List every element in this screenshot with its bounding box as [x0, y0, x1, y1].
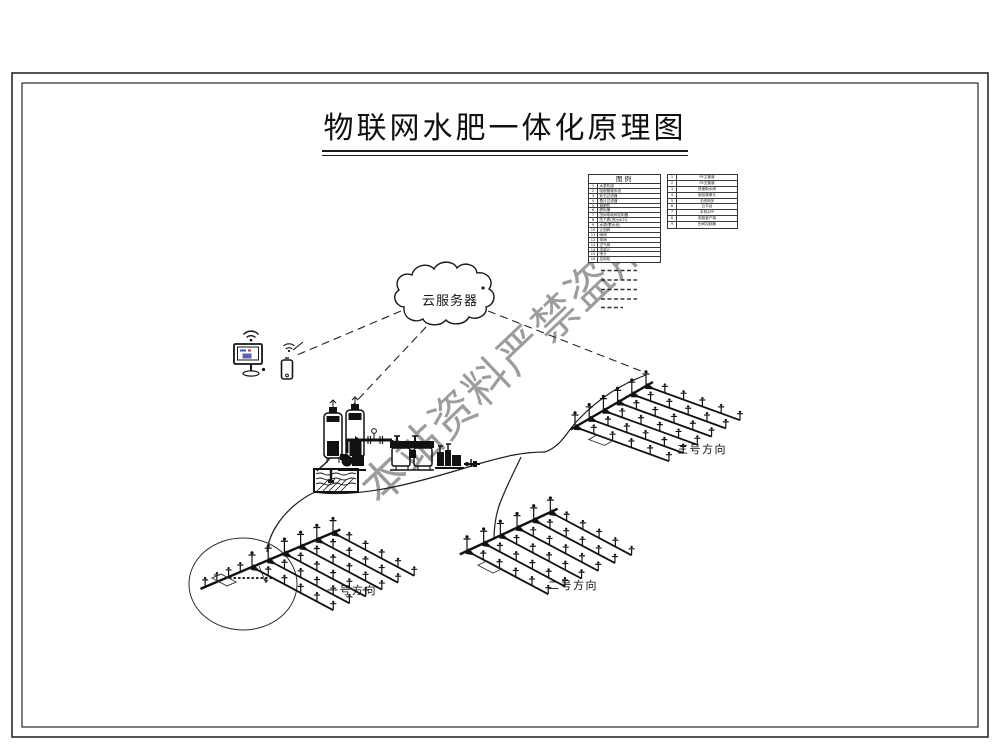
phone-icon — [282, 342, 304, 379]
legend-rows: 1PE主管道2PE支管道3快速取水阀4倒挂微喷头5无线网关6云平台7手机APP8… — [668, 175, 737, 228]
legend-item-number: 11 — [589, 233, 598, 237]
antenna-icon — [352, 397, 358, 404]
legend-item-label: 球阀 — [598, 238, 660, 242]
field-grid-1 — [200, 517, 417, 610]
legend-item-number: 5 — [668, 199, 677, 204]
legend-item-label: 云平台 — [677, 204, 737, 209]
legend-header: 图例 — [589, 175, 660, 184]
legend-item-number: 14 — [589, 248, 598, 252]
sprinkler-fields — [200, 370, 743, 610]
wifi-icon — [286, 348, 292, 349]
legend-line-samples — [601, 271, 637, 308]
legend-rows: 1水泵机组2吸程管路系统3砂石过滤器4叠片过滤器5施肥机6肥料桶7田间电磁阀控制… — [589, 184, 660, 262]
legend-item-label: 快速取水阀 — [677, 187, 737, 192]
legend-item-number: 15 — [589, 252, 598, 256]
legend-item-label: 空气阀 — [598, 243, 660, 247]
fertigation-skid — [435, 444, 480, 468]
link-cloud-to-field3 — [488, 311, 641, 371]
legend-item-label: PE支管道 — [677, 181, 737, 186]
pump-station — [314, 397, 480, 492]
legend-item-number: 6 — [668, 204, 677, 209]
legend-item-label: 止回阀 — [598, 228, 660, 232]
link-cloud-to-monitor — [297, 311, 401, 355]
drawing-sheet: 本站资料严禁盗用 — [0, 0, 1000, 750]
legend-item-number: 2 — [589, 189, 598, 193]
legend-item-number: 1 — [589, 184, 598, 188]
legend-item-number: 9 — [668, 222, 677, 228]
legend-item-label: 田间电磁阀控制器 — [598, 213, 660, 217]
pump-icon — [338, 454, 366, 470]
legend-item-number: 7 — [589, 213, 598, 217]
wifi-icon — [247, 336, 256, 338]
wireless-links — [297, 311, 641, 406]
legend-item-number: 16 — [589, 257, 598, 262]
legend-item-number: 3 — [589, 194, 598, 198]
cloud-server-label: 云服务器 — [407, 290, 493, 309]
legend-item-number: 8 — [589, 218, 598, 222]
legend-item-number: 1 — [668, 175, 677, 180]
fertilizer-tank — [346, 404, 364, 458]
legend-item-number: 4 — [589, 199, 598, 203]
legend-item-label: 电脑客户端 — [677, 216, 737, 221]
legend-item-label: 水源(蓄水池) — [598, 223, 660, 227]
legend-item-label: 叠片过滤器 — [598, 199, 660, 203]
legend-item-label: 吸程管路系统 — [598, 189, 660, 193]
legend-item-label: 田间控制器 — [677, 222, 737, 228]
legend-item-label: 施肥机 — [598, 204, 660, 208]
legend-item-number: 12 — [589, 238, 598, 242]
legend-row: 9田间控制器 — [668, 222, 737, 228]
legend-item-label: 压力表(进出水口) — [598, 218, 660, 222]
legend-item-label: 肥料桶 — [598, 208, 660, 212]
legend-item-number: 3 — [668, 187, 677, 192]
legend-item-number: 8 — [668, 216, 677, 221]
legend-item-label: 倒挂微喷头 — [677, 193, 737, 198]
drawing-title: 物联网水肥一体化原理图 — [300, 103, 710, 147]
legend-item-label: PE主管道 — [677, 175, 737, 180]
field-2-label: 二号方向 — [548, 577, 598, 593]
title-underline — [322, 150, 688, 156]
legend-item-number: 4 — [668, 193, 677, 198]
monitor-icon — [234, 331, 265, 376]
legend-item-label: 无线网关 — [677, 199, 737, 204]
link-cloud-to-station — [352, 327, 426, 406]
field-1-label: 一号方向 — [327, 582, 377, 598]
legend-table-2: 1PE主管道2PE支管道3快速取水阀4倒挂微喷头5无线网关6云平台7手机APP8… — [667, 174, 738, 229]
antenna-icon — [330, 400, 336, 407]
legend-item-number: 5 — [589, 204, 598, 208]
sheet-frame — [12, 73, 988, 737]
legend-item-label: 砂石过滤器 — [598, 194, 660, 198]
legend-item-label: 闸阀 — [598, 233, 660, 237]
legend-item-number: 6 — [589, 208, 598, 212]
legend-item-label: 手机APP — [677, 210, 737, 215]
legend-item-number: 2 — [668, 181, 677, 186]
field-3-label: 三号方向 — [677, 441, 727, 457]
legend-item-number: 9 — [589, 223, 598, 227]
legend-item-label: 流量计 — [598, 248, 660, 252]
legend-item-label: 喷头 — [598, 252, 660, 256]
filter-unit — [390, 436, 434, 470]
legend-row: 16控制柜 — [589, 257, 660, 262]
legend-item-number: 7 — [668, 210, 677, 215]
legend-item-number: 13 — [589, 243, 598, 247]
legend-item-number: 10 — [589, 228, 598, 232]
legend-table: 图例 1水泵机组2吸程管路系统3砂石过滤器4叠片过滤器5施肥机6肥料桶7田间电磁… — [588, 174, 661, 263]
legend-item-label: 水泵机组 — [598, 184, 660, 188]
legend-item-label: 控制柜 — [598, 257, 660, 262]
fertilizer-tank — [324, 407, 342, 458]
water-pool — [314, 469, 358, 492]
